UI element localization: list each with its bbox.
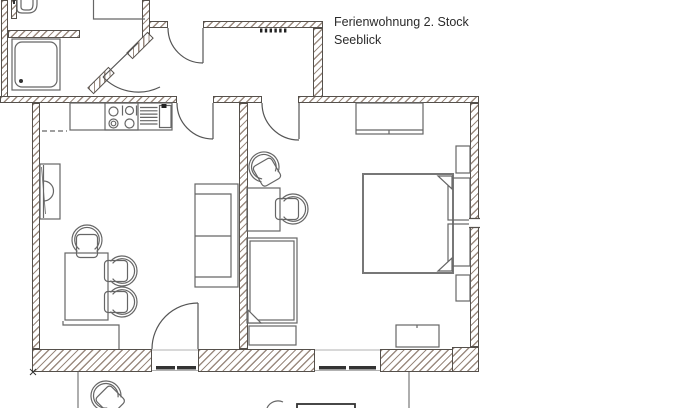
stair-mark bbox=[274, 29, 276, 33]
balcony-door-track bbox=[177, 366, 196, 370]
tv-screen-arc bbox=[44, 181, 54, 201]
nightstand bbox=[456, 146, 470, 173]
landing-door-arc bbox=[168, 28, 203, 63]
balcony-door-track bbox=[156, 366, 175, 370]
shower-drain bbox=[19, 79, 23, 83]
corner-x-mark bbox=[30, 369, 36, 375]
wc-sink-inner bbox=[21, 0, 33, 10]
stove-burner bbox=[111, 121, 116, 126]
sink-faucet bbox=[162, 104, 167, 108]
floor-step-line bbox=[63, 321, 119, 349]
stair-mark bbox=[265, 29, 267, 33]
balcony-table bbox=[297, 404, 355, 408]
sofa-cushion-lines bbox=[195, 194, 231, 277]
single-bed-footboard bbox=[249, 326, 296, 345]
entrance-door-arc bbox=[103, 77, 160, 92]
dining-chair-right-2 bbox=[105, 287, 138, 317]
living-room-door-arc bbox=[177, 103, 213, 139]
bedroom-window-sash bbox=[349, 366, 376, 370]
single-bed-fold bbox=[248, 310, 261, 323]
nightstand bbox=[456, 275, 470, 301]
dining-table bbox=[65, 253, 108, 320]
blanket-fold bbox=[438, 176, 452, 189]
stair-mark bbox=[279, 29, 281, 33]
balcony-door-arc bbox=[152, 303, 198, 349]
wardrobe bbox=[356, 103, 423, 134]
double-bed bbox=[363, 174, 453, 273]
dining-chair-right-1 bbox=[105, 256, 138, 286]
plan-linework bbox=[0, 0, 680, 408]
stove-burner bbox=[109, 107, 118, 116]
entrance-door-leaf bbox=[103, 43, 138, 77]
title-line-2: Seeblick bbox=[334, 31, 469, 49]
shower-tray bbox=[12, 39, 60, 90]
sink-basin bbox=[160, 106, 172, 128]
single-bed-mattress bbox=[250, 241, 294, 320]
single-bed bbox=[247, 238, 297, 323]
stove-burner bbox=[109, 119, 118, 128]
bedroom-window-sash bbox=[319, 366, 346, 370]
bedroom-door-arc bbox=[262, 103, 299, 140]
dresser bbox=[396, 325, 439, 347]
stair-mark bbox=[284, 29, 286, 33]
floor-plan: Ferienwohnung 2. Stock Seeblick bbox=[0, 0, 680, 408]
plan-title: Ferienwohnung 2. Stock Seeblick bbox=[334, 13, 469, 49]
hall-niche-lines bbox=[94, 0, 146, 19]
side-window-gap bbox=[469, 219, 480, 228]
stove-burner bbox=[125, 119, 134, 128]
blanket-fold bbox=[438, 258, 452, 271]
bedroom-loose-chair bbox=[243, 146, 285, 189]
balcony-chair bbox=[85, 375, 129, 408]
wc-sink bbox=[17, 0, 37, 13]
stair-mark bbox=[260, 29, 262, 33]
stair-mark bbox=[270, 29, 272, 33]
wardrobe-detail bbox=[356, 130, 423, 134]
sink-drainer-lines bbox=[140, 108, 158, 125]
title-line-1: Ferienwohnung 2. Stock bbox=[334, 13, 469, 31]
stove-burner bbox=[126, 107, 134, 115]
balcony-chair-fragment bbox=[267, 401, 283, 408]
